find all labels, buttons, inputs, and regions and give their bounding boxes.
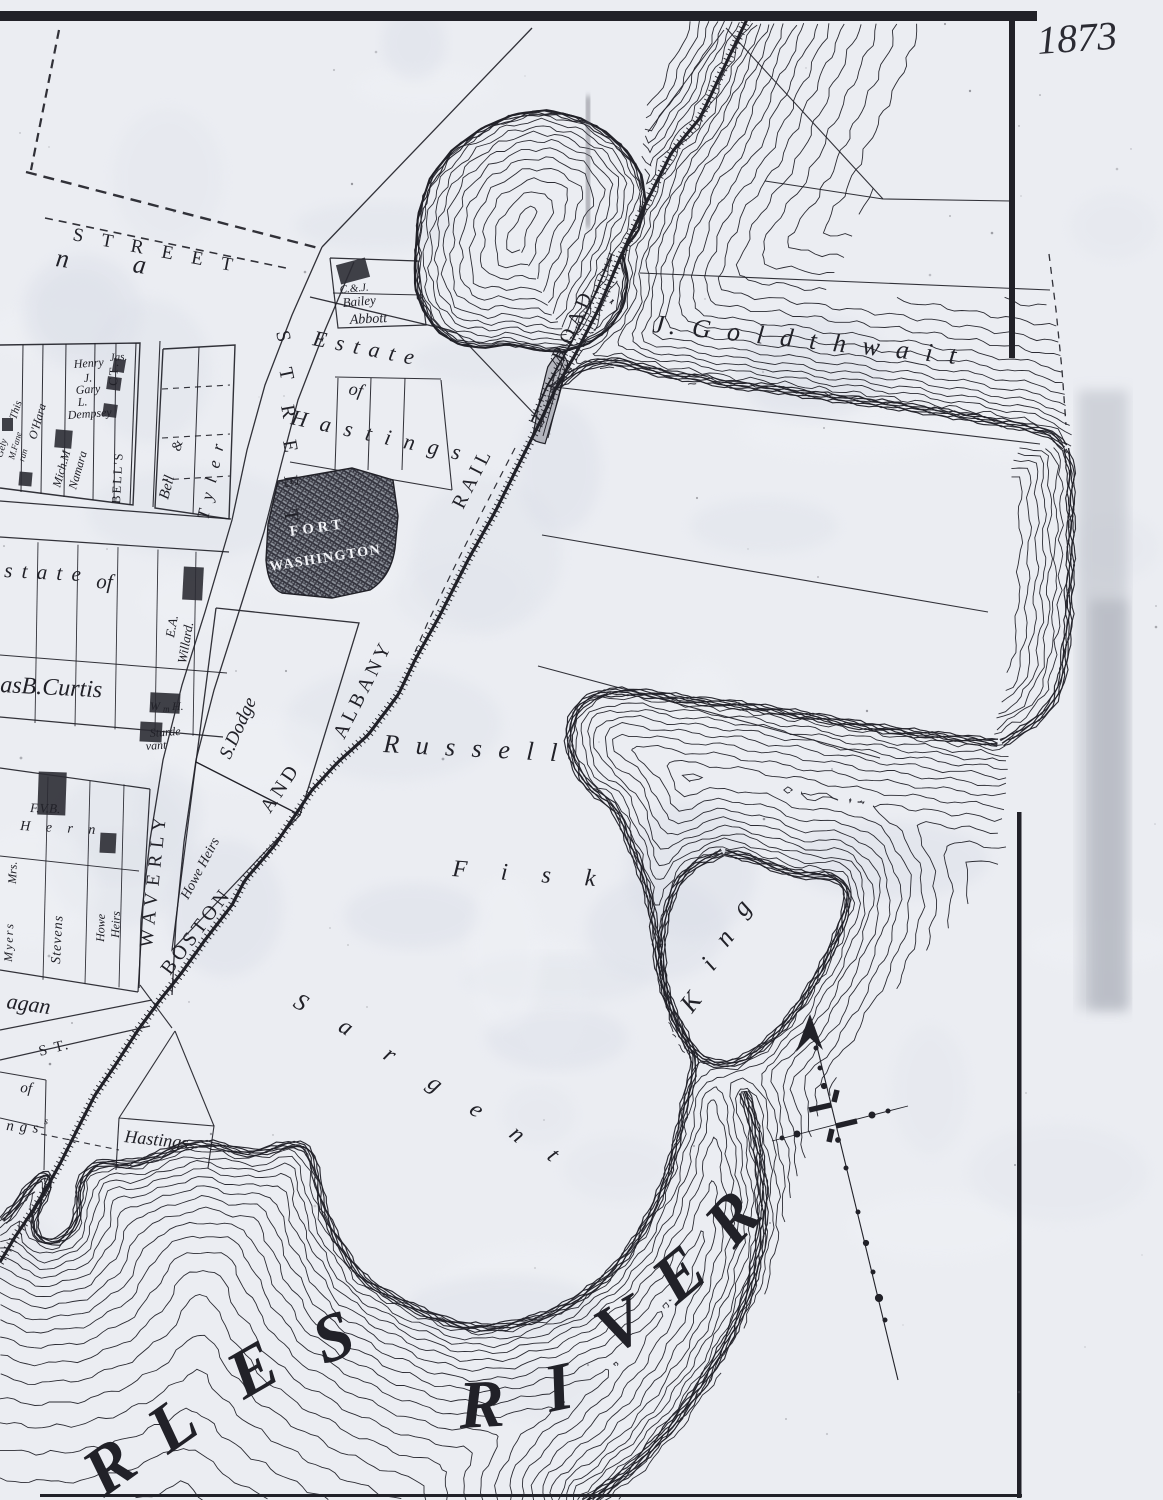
svg-text:Stevens: Stevens (49, 915, 67, 965)
svg-text:H.: H. (171, 699, 184, 713)
svg-text:W: W (150, 699, 161, 713)
svg-text:asB.Curtis: asB.Curtis (0, 672, 103, 703)
svg-text:Myers: Myers (1, 922, 16, 963)
svg-text:CT.: CT. (106, 361, 121, 386)
svg-text:Bailey: Bailey (342, 292, 377, 310)
svg-text:Henry: Henry (72, 355, 105, 371)
svg-text:1873: 1873 (1035, 13, 1118, 63)
svg-text:vant: vant (145, 738, 167, 753)
svg-text:m: m (163, 704, 170, 714)
svg-text:R: R (456, 1365, 506, 1443)
svg-text:BELL'S: BELL'S (109, 451, 126, 504)
svg-text:s t a t e: s t a t e (4, 558, 84, 586)
svg-text:F.V.B.: F.V.B. (29, 800, 61, 816)
svg-text:Jas.: Jas. (109, 351, 127, 364)
svg-text:Mrs.: Mrs. (5, 861, 20, 885)
svg-text:n g s: n g s (6, 1118, 41, 1137)
svg-text:Abbott: Abbott (348, 311, 388, 328)
svg-text:Howe: Howe (93, 913, 108, 943)
svg-text:Heirs: Heirs (108, 911, 123, 939)
